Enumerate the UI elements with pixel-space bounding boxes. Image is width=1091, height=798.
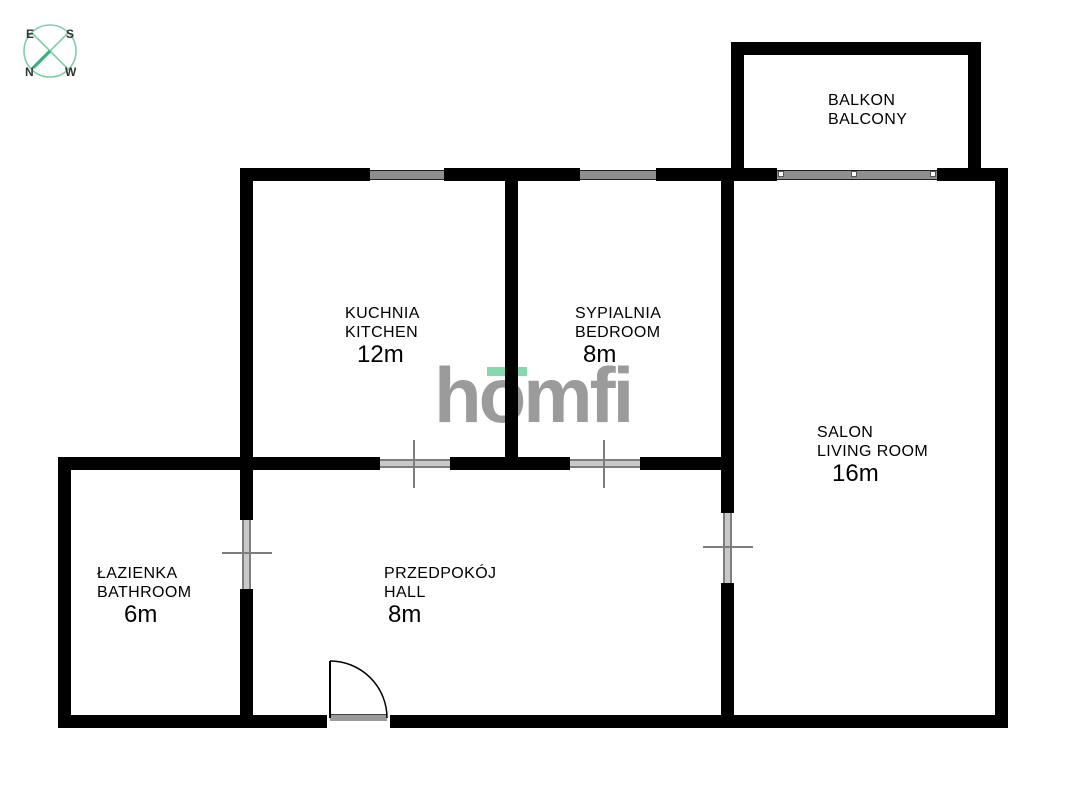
compass-label-s: S (66, 27, 74, 41)
window-balcony-mullion-left (778, 171, 784, 177)
balcony-name-pl: BALKON (828, 91, 907, 110)
bathroom-name-pl: ŁAZIENKA (97, 564, 191, 583)
balcony-name-en: BALCONY (828, 110, 907, 129)
room-label-bedroom: SYPIALNIA BEDROOM 8m (575, 304, 661, 364)
bedroom-name-pl: SYPIALNIA (575, 304, 661, 323)
compass-label-w: W (65, 65, 77, 79)
wall-hall-top-middle (450, 457, 570, 470)
wall-top-bedroom-right (656, 168, 777, 181)
door-bedroom-tick (603, 440, 605, 488)
living-room-name-en: LIVING ROOM (817, 442, 928, 461)
wall-balcony-left (731, 42, 744, 168)
compass-rose: E S N W (0, 0, 100, 100)
wall-east-lower (721, 583, 734, 728)
wall-hall-top-left (58, 457, 380, 470)
bedroom-name-en: BEDROOM (575, 323, 661, 342)
hall-name-pl: PRZEDPOKÓJ (384, 564, 496, 583)
compass-label-e: E (26, 27, 34, 41)
living-room-area: 16m (817, 464, 928, 483)
wall-east-upper (721, 168, 734, 513)
door-living-room (723, 513, 732, 583)
bedroom-area: 8m (575, 345, 661, 364)
window-bedroom (580, 170, 656, 180)
compass-label-n: N (25, 65, 34, 79)
window-balcony-mullion-center (851, 171, 857, 177)
kitchen-name-en: KITCHEN (345, 323, 420, 342)
door-living-room-tick (703, 546, 753, 548)
room-label-hall: PRZEDPOKÓJ HALL 8m (384, 564, 496, 624)
door-kitchen-tick (413, 440, 415, 488)
room-label-bathroom: ŁAZIENKA BATHROOM 6m (97, 564, 191, 624)
bathroom-name-en: BATHROOM (97, 583, 191, 602)
room-label-living-room: SALON LIVING ROOM 16m (817, 423, 928, 483)
wall-salon-right (995, 168, 1008, 728)
wall-kitchen-bedroom-divider (505, 168, 518, 457)
window-kitchen (370, 170, 444, 180)
wall-bottom-right (390, 715, 1008, 728)
wall-hall-top-right (640, 457, 734, 470)
living-room-name-pl: SALON (817, 423, 928, 442)
door-bathroom-tick (222, 552, 272, 554)
door-bedroom (570, 459, 640, 468)
door-bathroom (242, 520, 251, 589)
compass-needle (33, 51, 50, 68)
hall-area: 8m (384, 605, 496, 624)
floor-plan: E S N W homfi (0, 0, 1091, 798)
bathroom-area: 6m (97, 605, 191, 624)
room-label-kitchen: KUCHNIA KITCHEN 12m (345, 304, 420, 364)
door-kitchen (380, 459, 450, 468)
wall-balcony-top (731, 42, 981, 55)
wall-top-kitchen-left (242, 168, 370, 181)
window-balcony-mullion-right (930, 171, 936, 177)
entry-door-swing (325, 655, 395, 725)
window-balcony-door (777, 170, 937, 180)
wall-bottom-left (58, 715, 327, 728)
wall-west-upper (240, 168, 253, 520)
kitchen-name-pl: KUCHNIA (345, 304, 420, 323)
hall-name-en: HALL (384, 583, 496, 602)
wall-west-lower (240, 589, 253, 728)
wall-bathroom-left (58, 458, 71, 728)
wall-balcony-right (968, 42, 981, 168)
kitchen-area: 12m (345, 345, 420, 364)
room-label-balcony: BALKON BALCONY (828, 91, 907, 129)
